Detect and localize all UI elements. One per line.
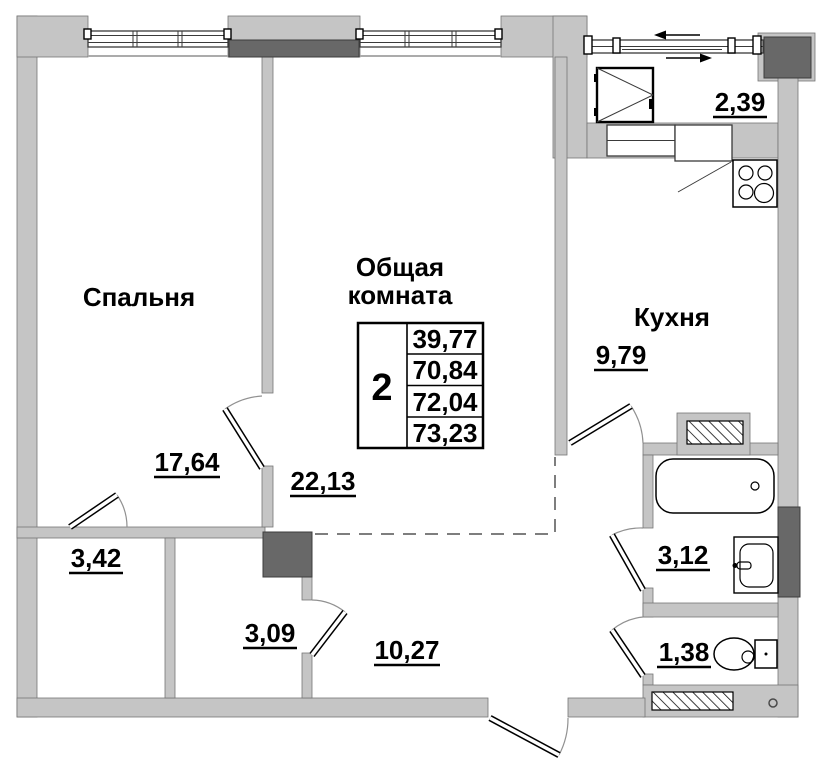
wc-area-label: 1,38 [657,637,711,667]
toilet-bowl [714,638,754,670]
info-table: 2 39,77 70,84 72,04 73,23 [358,323,483,448]
sink [733,537,779,593]
balcony-area-label: 2,39 [713,87,767,117]
svg-text:9,79: 9,79 [596,340,647,370]
toilet [714,638,777,670]
area-total: 72,04 [412,387,478,417]
floor-plan: Спальня 17,64 Общая комната 22,13 Кухня … [0,0,828,779]
corner-pillar [764,37,811,78]
wall-segment [17,698,488,717]
wall-segment [262,466,273,527]
balcony-door [675,125,732,161]
wall-segment [302,653,312,698]
wall-segment [643,603,778,617]
vent-grille-kitchen [687,421,743,444]
wall-segment [643,455,653,528]
svg-text:3,12: 3,12 [658,540,709,570]
svg-text:2,39: 2,39 [715,87,766,117]
svg-text:10,27: 10,27 [374,635,439,665]
svg-text:22,13: 22,13 [290,466,355,496]
living-room-label-line1: Общая [356,252,444,282]
wall-segment [17,16,88,57]
kitchen-label: Кухня [634,302,710,332]
balcony-opening-symbol [594,68,654,122]
living-room-area-label: 22,13 [290,466,356,496]
hallway-area-label: 10,27 [374,635,440,665]
wall-segment [17,527,265,538]
storage-center-area-label: 3,09 [243,618,297,648]
room-count: 2 [371,367,392,409]
wall-segment [643,674,653,685]
svg-text:17,64: 17,64 [154,447,220,477]
svg-text:1,38: 1,38 [659,637,710,667]
wall-segment [165,538,175,698]
area-apartment: 70,84 [412,355,478,385]
ventilation-shaft-center [263,532,312,577]
balcony-slab-block [229,40,359,57]
wall-segment [555,57,567,455]
bedroom-area-label: 17,64 [154,447,220,477]
kitchen-balcony-unit [607,125,732,161]
living-room-label-line2: комната [348,280,453,310]
wall-segment [568,698,645,717]
area-living-total: 39,77 [412,324,477,354]
wall-segment [262,57,273,393]
wall-segment [778,78,798,717]
vent-grille-wc [652,692,733,710]
kitchen-area-label: 9,79 [594,340,648,370]
bedroom-label: Спальня [83,282,195,312]
storage-left-area-label: 3,42 [69,543,123,573]
bathtub [656,459,774,513]
ventilation-shaft-right [778,507,800,597]
area-total-with-balcony: 73,23 [412,418,477,448]
bathroom-area-label: 3,12 [656,540,710,570]
svg-text:3,09: 3,09 [245,618,296,648]
svg-text:3,42: 3,42 [71,543,122,573]
wall-segment [302,577,312,600]
wall-segment [17,16,37,717]
